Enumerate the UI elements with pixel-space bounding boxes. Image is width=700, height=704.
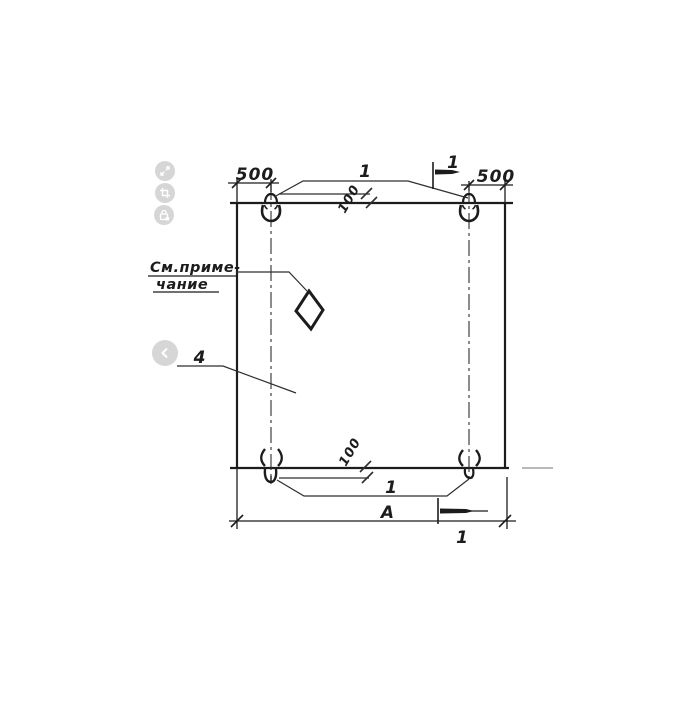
loop-callout-top-label: 1	[359, 162, 371, 182]
diamond-marker	[296, 291, 323, 329]
overall-width-label: A	[379, 503, 395, 523]
dim-100-bottom-label: 100	[336, 435, 364, 469]
see-note-annotation: См.приме- чание	[148, 260, 323, 329]
crop-button[interactable]	[155, 183, 175, 203]
expand-icon	[159, 165, 171, 177]
part-callout-label: 4	[193, 348, 207, 368]
expand-button[interactable]	[155, 161, 175, 181]
prev-button[interactable]	[152, 340, 178, 366]
loop-callout-bottom-label: 1	[385, 478, 397, 498]
panel-outline	[230, 203, 513, 469]
section-mark-bottom-label: 1	[456, 528, 468, 548]
lock-icon	[158, 209, 170, 221]
loop-callout-bottom	[277, 479, 469, 496]
lifting-loops	[261, 194, 480, 482]
section-mark-top-label: 1	[447, 153, 459, 173]
drawing-canvas: 500 500 100 100 1	[0, 0, 700, 700]
note-line1: См.приме-	[150, 260, 241, 276]
dim-500-right-label: 500	[477, 167, 516, 187]
dim-tick	[360, 461, 371, 472]
crop-icon	[159, 187, 171, 199]
note-line2: чание	[156, 277, 208, 293]
dimension-overall-width	[229, 469, 516, 529]
section-mark-bottom	[438, 498, 488, 524]
dim-100-top-label: 100	[335, 182, 363, 216]
dim-500-left-label: 500	[236, 165, 275, 185]
panel-plan-drawing: 500 500 100 100 1	[0, 0, 700, 700]
dimension-100-bottom	[279, 461, 373, 483]
section-arrow	[440, 509, 474, 514]
lock-button[interactable]	[154, 205, 174, 225]
loop-axis-lines	[271, 184, 469, 484]
chevron-left-icon	[158, 346, 172, 360]
